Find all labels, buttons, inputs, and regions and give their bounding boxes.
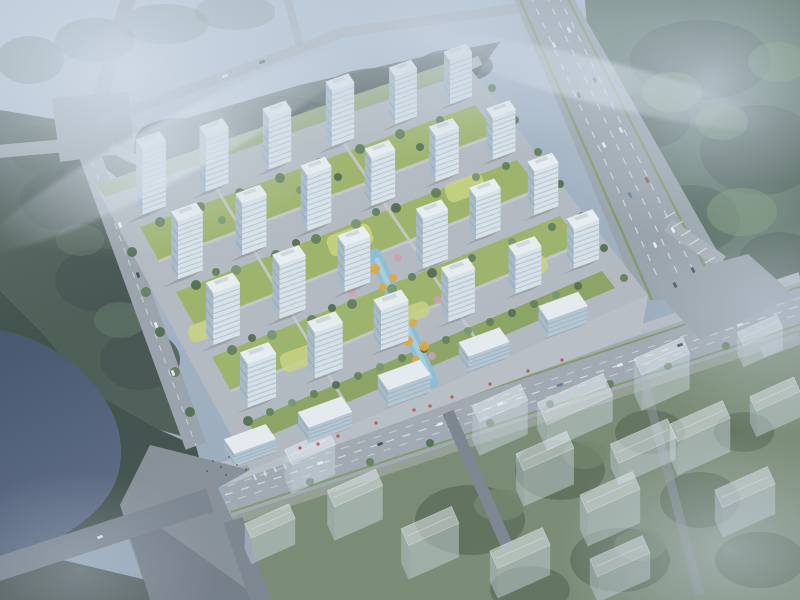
pedestrian (225, 474, 227, 476)
tree (722, 342, 730, 350)
blossom-tree (434, 296, 442, 304)
tree (574, 282, 582, 290)
tree (155, 327, 165, 337)
pedestrian (236, 464, 238, 466)
forest-tuft (696, 104, 748, 140)
tree (502, 162, 510, 170)
golden-tree (379, 283, 387, 291)
forest-tuft (56, 224, 104, 256)
tree (408, 273, 416, 281)
tree (127, 247, 137, 257)
tree (508, 309, 516, 317)
golden-tree (370, 264, 380, 274)
tree (376, 363, 384, 371)
road-to-west (0, 146, 60, 152)
tree (620, 274, 628, 282)
tree (354, 372, 362, 380)
forest-tuft (707, 188, 777, 236)
blossom-tree (428, 352, 436, 360)
tree (267, 330, 277, 340)
tree (334, 173, 342, 181)
tree (530, 300, 538, 308)
retail-awning (526, 369, 529, 372)
retail-awning (336, 434, 339, 437)
apartment-tower-south-face (345, 236, 371, 291)
pedestrian (212, 460, 214, 462)
tree (355, 144, 365, 154)
blossom-tree (394, 254, 402, 262)
retail-awning (450, 395, 453, 398)
tree (191, 280, 201, 290)
retail-awning (412, 408, 415, 411)
golden-tree (409, 319, 417, 327)
retail-awning (298, 446, 301, 449)
tree (347, 299, 357, 309)
tree (243, 416, 253, 426)
tree (311, 234, 321, 244)
retail-awning (316, 442, 319, 445)
tree (328, 304, 336, 312)
tree (488, 84, 496, 92)
tree (185, 407, 195, 417)
tree (472, 173, 480, 181)
tree (398, 354, 406, 362)
tree (427, 268, 437, 278)
tree (227, 345, 237, 355)
tree (391, 203, 401, 213)
retail-awning (428, 404, 431, 407)
tree (431, 188, 441, 198)
tree (332, 381, 340, 389)
rendering-scene (0, 0, 800, 600)
golden-tree (419, 341, 429, 351)
tree (310, 390, 318, 398)
forest-tuft (642, 72, 702, 112)
tree (248, 334, 256, 342)
tree (442, 336, 450, 344)
tree (288, 399, 296, 407)
pedestrian (228, 456, 230, 458)
tree (366, 458, 374, 466)
tree (212, 268, 220, 276)
tree (464, 327, 472, 335)
aerial-rendering-canvas (0, 0, 800, 600)
tree (395, 129, 405, 139)
north-road-branch (286, 0, 300, 46)
pedestrian (220, 466, 222, 468)
tree (141, 287, 151, 297)
tree (155, 217, 165, 227)
retail-awning (488, 382, 491, 385)
golden-tree (389, 274, 397, 282)
tree (552, 291, 560, 299)
tree (218, 216, 226, 224)
tree (416, 143, 424, 151)
tree (266, 408, 274, 416)
retail-awning (374, 421, 377, 424)
tree (426, 439, 434, 447)
tree (600, 244, 608, 252)
retail-awning (560, 358, 563, 361)
forest-blob (0, 36, 64, 84)
tree (486, 318, 494, 326)
pedestrian (206, 470, 208, 472)
pedestrian (245, 469, 247, 471)
tree (534, 148, 542, 156)
tree (548, 223, 556, 231)
tree (275, 173, 285, 183)
tree (372, 208, 380, 216)
